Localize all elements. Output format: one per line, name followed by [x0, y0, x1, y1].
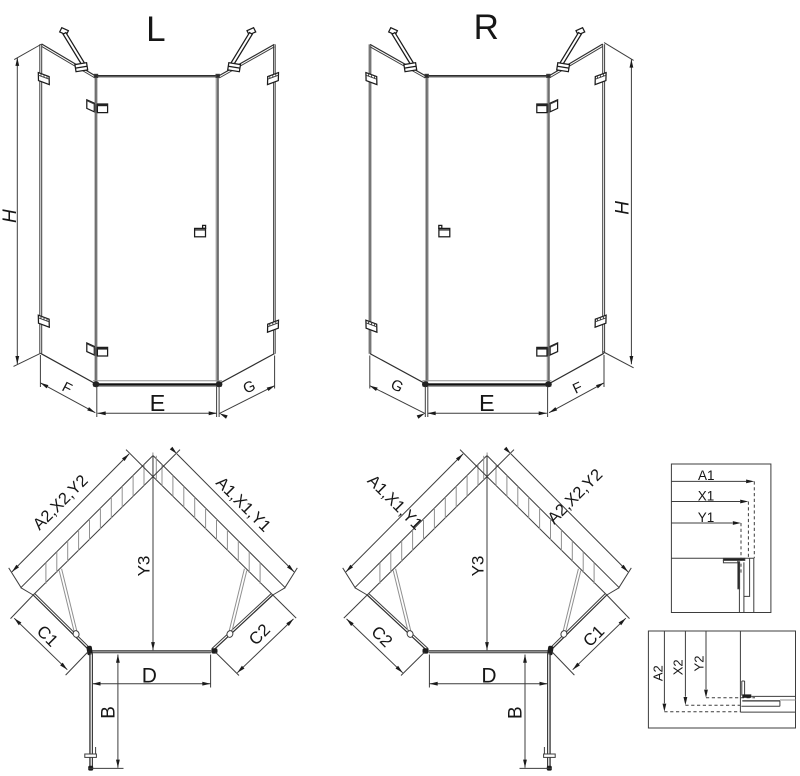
svg-text:B: B: [99, 706, 120, 719]
svg-text:A1: A1: [698, 468, 715, 483]
svg-text:Y2: Y2: [691, 656, 706, 672]
svg-text:Y3: Y3: [469, 556, 488, 577]
svg-text:A2: A2: [650, 665, 665, 681]
svg-text:E: E: [479, 390, 495, 416]
svg-text:H: H: [610, 200, 631, 214]
svg-text:D: D: [142, 665, 157, 688]
svg-text:X2: X2: [670, 659, 685, 675]
svg-text:D: D: [481, 665, 496, 688]
svg-text:Y3: Y3: [135, 556, 154, 577]
svg-text:H: H: [0, 209, 21, 223]
svg-text:E: E: [150, 390, 166, 416]
svg-text:B: B: [505, 706, 526, 719]
svg-text:L: L: [146, 10, 165, 49]
svg-text:R: R: [474, 8, 499, 47]
